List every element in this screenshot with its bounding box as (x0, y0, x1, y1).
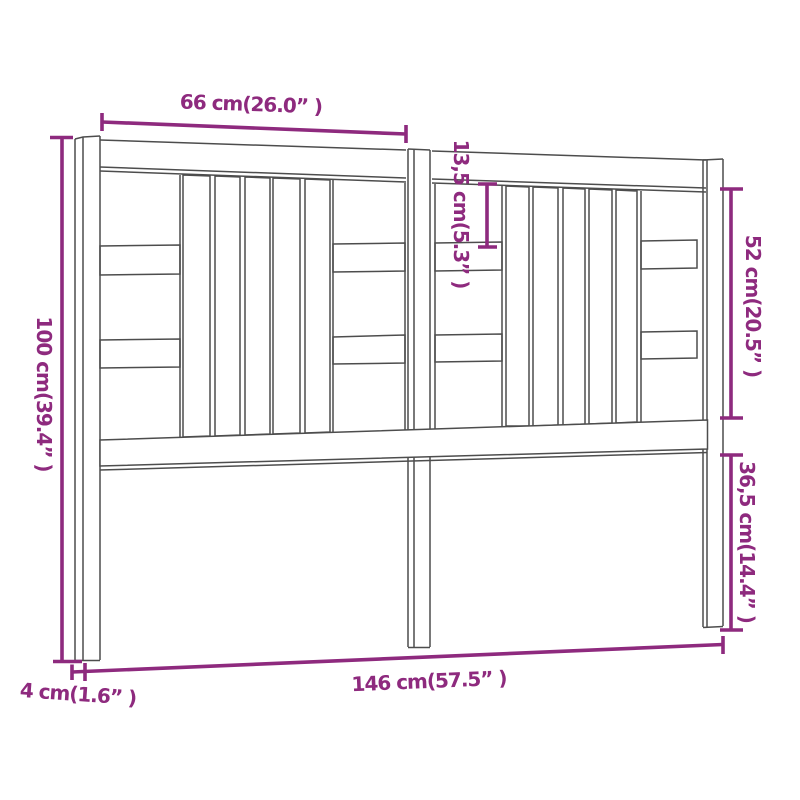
panel-d-horizontal-slats (641, 191, 697, 422)
dimension-diagram: 66 cm(26.0” ) 13,5 cm(5.3” ) 52 cm(20.5”… (0, 0, 800, 800)
dim-label-total-height: 100 cm(39.4” ) (32, 316, 56, 471)
dimension-lines (50, 113, 743, 681)
right-post (703, 159, 723, 628)
panel-b-horizontal-slats (333, 180, 405, 432)
headboard-frame (75, 136, 723, 661)
panel-a-horizontal-slats (100, 175, 180, 437)
left-vertical-slats (183, 175, 330, 437)
lower-rail (100, 420, 708, 470)
top-rail (100, 140, 706, 192)
dim-label-top-half-width: 66 cm(26.0” ) (180, 90, 323, 119)
dim-label-upper-section-height: 52 cm(20.5” ) (741, 235, 765, 377)
left-post (75, 136, 100, 661)
dim-label-leg-section-height: 36,5 cm(14.4” ) (735, 461, 759, 623)
dim-line-top-half-width (102, 113, 406, 143)
right-vertical-slats (506, 186, 637, 426)
dim-line-slat-gap-height (478, 184, 497, 247)
dim-label-slat-gap-height: 13,5 cm(5.3” ) (449, 140, 473, 289)
center-post (408, 149, 430, 648)
